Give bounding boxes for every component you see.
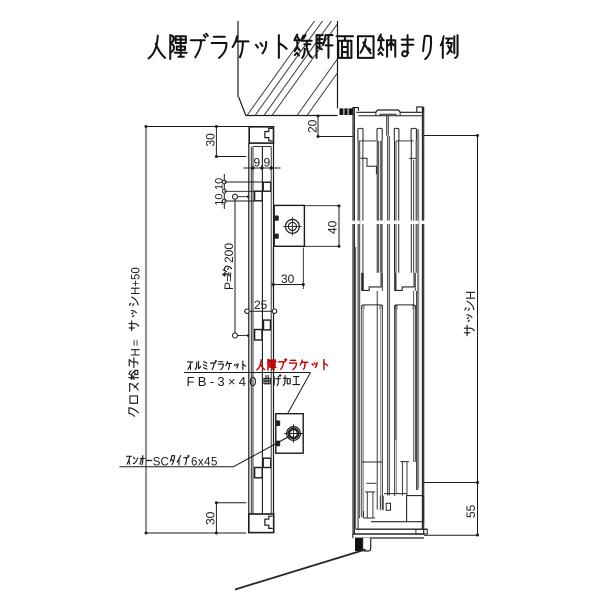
svg-text:40: 40 <box>326 220 340 234</box>
svg-text:10: 10 <box>214 178 226 190</box>
svg-text:P=: P= <box>222 275 236 290</box>
svg-text:9.9: 9.9 <box>254 156 271 170</box>
svg-text:30: 30 <box>204 133 218 147</box>
svg-text:FB-3×40: FB-3×40 <box>187 374 260 389</box>
svg-text:55: 55 <box>464 504 478 518</box>
svg-text:20: 20 <box>306 119 320 133</box>
svg-text:25: 25 <box>254 298 268 312</box>
svg-text:=: = <box>130 339 142 346</box>
svg-text:6x45: 6x45 <box>191 456 218 468</box>
svg-text:H: H <box>464 291 478 300</box>
svg-text:200: 200 <box>222 243 236 263</box>
svg-text:30: 30 <box>281 272 295 286</box>
svg-text:H: H <box>130 348 142 356</box>
svg-text:10: 10 <box>214 194 226 206</box>
svg-text:SC: SC <box>153 456 169 468</box>
svg-text:30: 30 <box>204 511 218 525</box>
svg-text:H+50: H+50 <box>130 267 142 295</box>
